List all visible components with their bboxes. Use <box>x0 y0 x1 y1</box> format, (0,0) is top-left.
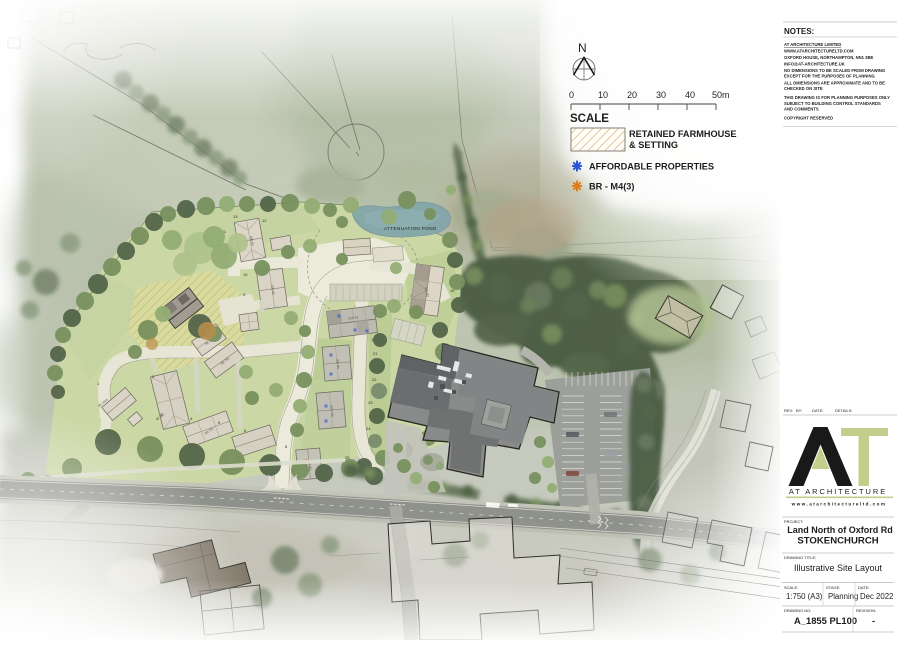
svg-text:DATE:: DATE: <box>858 585 869 590</box>
svg-text:NOTES:: NOTES: <box>784 27 814 36</box>
svg-text:BY:: BY: <box>796 408 802 413</box>
svg-text:DETAILS:: DETAILS: <box>835 408 853 413</box>
svg-text:INFO@AT-ARCHITECTURE.UK: INFO@AT-ARCHITECTURE.UK <box>784 62 845 67</box>
svg-text:1:750 (A3): 1:750 (A3) <box>786 592 823 601</box>
svg-text:AT ARCHITECTURE: AT ARCHITECTURE <box>789 487 887 496</box>
svg-text:30: 30 <box>656 90 666 100</box>
svg-text:Illustrative Site Layout: Illustrative Site Layout <box>794 563 883 573</box>
svg-text:DATE:: DATE: <box>812 408 823 413</box>
svg-text:-: - <box>872 615 875 626</box>
svg-text:24: 24 <box>366 426 371 431</box>
svg-text:N: N <box>578 41 587 55</box>
svg-text:40: 40 <box>685 90 695 100</box>
svg-text:21: 21 <box>373 351 378 356</box>
svg-text:SCALE: SCALE <box>570 113 609 125</box>
svg-text:DRAWING NO:: DRAWING NO: <box>784 608 811 613</box>
svg-text:STAGE:: STAGE: <box>826 585 840 590</box>
svg-text:AFFORDABLE PROPERTIES: AFFORDABLE PROPERTIES <box>589 162 714 172</box>
svg-text:RETAINED FARMHOUSE: RETAINED FARMHOUSE <box>629 129 737 139</box>
svg-text:Land North of Oxford Rd: Land North of Oxford Rd <box>787 525 893 535</box>
svg-text:DRAWING TITLE:: DRAWING TITLE: <box>784 555 816 560</box>
svg-text:10: 10 <box>243 272 248 277</box>
svg-text:CHECKED ON SITE: CHECKED ON SITE <box>784 86 823 91</box>
svg-text:10: 10 <box>598 90 608 100</box>
svg-text:COPYRIGHT RESERVED: COPYRIGHT RESERVED <box>784 116 833 121</box>
svg-text:STOKENCHURCH: STOKENCHURCH <box>797 536 878 547</box>
svg-text:ATTENUATION POND: ATTENUATION POND <box>384 226 437 231</box>
svg-text:BR - M4(3): BR - M4(3) <box>589 182 634 192</box>
svg-text:SCALE:: SCALE: <box>784 585 798 590</box>
svg-text:23: 23 <box>368 400 373 405</box>
svg-text:EXCEPT FOR THE PURPOSES OF PLA: EXCEPT FOR THE PURPOSES OF PLANNING <box>784 74 875 79</box>
svg-text:AT ARCHITECTURE LIMITED: AT ARCHITECTURE LIMITED <box>784 42 841 47</box>
svg-text:SUBJECT TO BUILDING CONTROL ST: SUBJECT TO BUILDING CONTROL STANDARDS <box>784 101 881 106</box>
svg-text:WWW.ATARCHITECTURELTD.COM: WWW.ATARCHITECTURELTD.COM <box>784 49 854 54</box>
svg-text:50m: 50m <box>712 90 730 100</box>
svg-text:OXFORD HOUSE, NORTHAMPTON, NN1: OXFORD HOUSE, NORTHAMPTON, NN1 3BE <box>784 55 873 60</box>
svg-text:www.atarchitectureltd.com: www.atarchitectureltd.com <box>791 502 887 507</box>
svg-text:20: 20 <box>627 90 637 100</box>
svg-text:Dec 2022: Dec 2022 <box>860 592 893 601</box>
svg-text:NO DIMENSIONS TO BE SCALED FRO: NO DIMENSIONS TO BE SCALED FROM DRAWING <box>784 68 885 73</box>
svg-text:A_1855 PL100: A_1855 PL100 <box>794 615 857 626</box>
svg-text:& SETTING: & SETTING <box>629 140 678 150</box>
svg-text:REVISION:: REVISION: <box>856 608 876 613</box>
svg-text:AND COMMENTS: AND COMMENTS <box>784 107 819 112</box>
svg-text:Planning: Planning <box>828 592 858 601</box>
svg-text:REV:: REV: <box>784 408 793 413</box>
svg-text:THIS DRAWING IS FOR PLANNING P: THIS DRAWING IS FOR PLANNING PURPOSES ON… <box>784 95 890 100</box>
svg-text:22: 22 <box>372 377 377 382</box>
svg-text:0: 0 <box>569 90 574 100</box>
svg-text:PROJECT:: PROJECT: <box>784 519 803 524</box>
svg-text:ALL DIMENSIONS ARE APPROXIMATE: ALL DIMENSIONS ARE APPROXIMATE AND TO BE <box>784 81 885 86</box>
